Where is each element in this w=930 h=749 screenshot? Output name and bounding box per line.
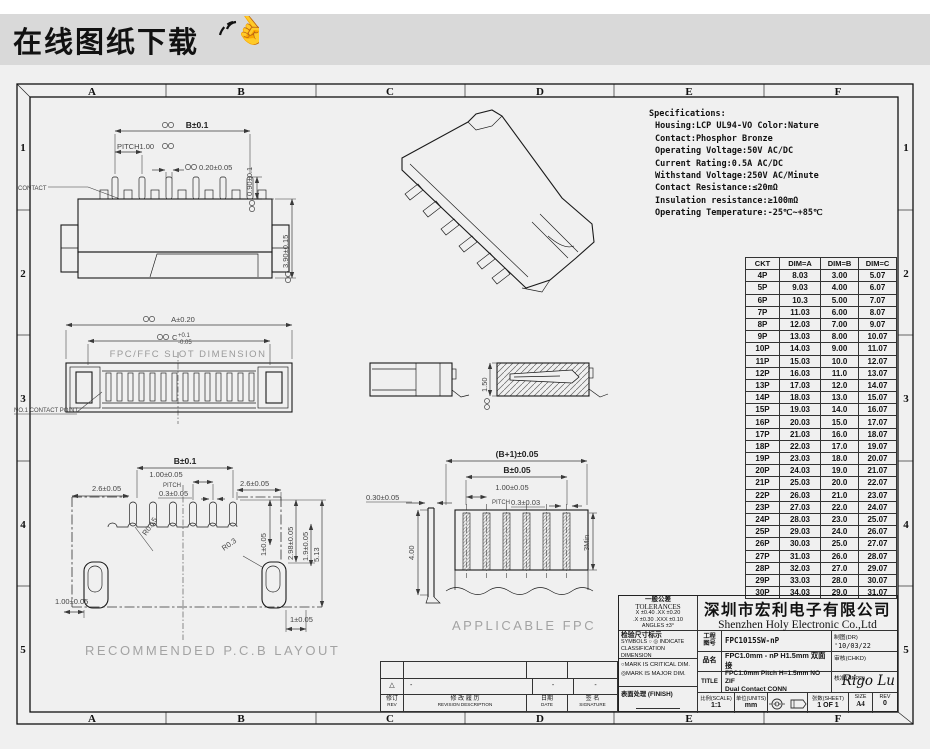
slot-teeth — [106, 373, 254, 401]
pcb-dim-pitch-val: 1.00±0.05 — [149, 470, 182, 479]
spec-lines: Housing:LCP UL94-VO Color:NatureContact:… — [649, 120, 899, 219]
fpc-dim-w: 0.3±0.03 — [511, 498, 540, 507]
table-row: 22P26.0321.023.07 — [746, 489, 897, 501]
size-cell: SIZE A4 — [849, 693, 873, 713]
column-header: DIM=C — [859, 258, 897, 270]
contact-label: CONTACT — [18, 186, 47, 192]
major-dim-note: ◎MARK IS MAJOR DIM. — [621, 670, 695, 679]
revision-mark-desc: - — [404, 679, 533, 695]
sheet-cell: 张数(SHEET)1 OF 1 — [808, 693, 849, 713]
spec-line: Housing:LCP UL94-VO Color:Nature — [649, 120, 899, 132]
table-row: 7P11.036.008.07 — [746, 306, 897, 318]
spec-line: Insulation resistance:≥100mΩ — [649, 195, 899, 207]
title-label: TITLE — [698, 672, 722, 692]
revision-sign-header: 签 名SIGNATURE — [568, 695, 617, 711]
table-row: 10P14.039.0011.07 — [746, 343, 897, 355]
projection-symbol-cell — [768, 693, 808, 713]
zone-number: 2 — [20, 268, 26, 280]
applicable-fpc-view: 0.30±0.05 4.00 — [366, 449, 597, 633]
table-row: 26P30.0325.027.07 — [746, 538, 897, 550]
section-dim-height: 1.50 — [480, 377, 489, 392]
zone-number: 4 — [903, 519, 909, 531]
column-header: CKT — [746, 258, 780, 270]
section-view: 1.50 — [480, 363, 608, 410]
spec-line: Contact:Phosphor Bronze — [649, 133, 899, 145]
slot-view: A±0.20 C +0.1 -0.05 FPC/FFC SLOT DIMENSI… — [14, 315, 292, 424]
checked-label: 审核(CHKD) — [834, 653, 895, 662]
pcb-layout-view: B±0.1 1.00±0.05 PITCH 0.3±0.05 2.6±0.05 … — [55, 456, 340, 658]
table-row: 28P32.0327.029.07 — [746, 562, 897, 574]
zone-letter: E — [685, 713, 692, 725]
revision-mark-rev: △ — [381, 679, 404, 695]
table-row: 29P33.0328.030.07 — [746, 574, 897, 586]
pcb-dim-left: 2.6±0.05 — [92, 484, 121, 493]
third-angle-projection-icon — [769, 696, 807, 712]
checked-cell: 审核(CHKD) — [832, 652, 897, 672]
front-dim-pin-h: 0.90±0.1 — [245, 167, 254, 196]
finish-label: 表面处理 (FINISH) — [621, 691, 673, 698]
title-line1: FPC1.0mm Pitch H=1.5mm NO ZIF — [725, 670, 831, 686]
table-row: 17P21.0316.018.07 — [746, 428, 897, 440]
rev-cell: REV0 — [873, 693, 897, 713]
table-row: 15P19.0314.016.07 — [746, 404, 897, 416]
pcb-dim-pad-w: 0.3±0.05 — [159, 489, 188, 498]
spec-line: Withstand Voltage:250V AC/Minute — [649, 170, 899, 182]
pcb-dim-v3: 1.9±0.05 — [301, 532, 310, 561]
tolerance-line: ANGLES ±3° — [621, 623, 695, 629]
fpc-dim-min: 3Min — [582, 535, 591, 551]
zone-letter: B — [237, 713, 245, 725]
zone-letter: E — [685, 86, 692, 98]
approved-signature: Rigo Lu — [842, 673, 895, 689]
revision-table: △ - - - 修订REV 修 改 履 历REVISION DESCRIPTIO… — [380, 661, 618, 712]
table-row: 20P24.0319.021.07 — [746, 465, 897, 477]
company-name-cn: 深圳市宏利电子有限公司 — [698, 598, 897, 620]
zone-number: 5 — [903, 644, 909, 656]
table-row: 13P17.0312.014.07 — [746, 379, 897, 391]
front-dim-pitch: PITCH1.00 — [117, 142, 154, 151]
zone-number: 4 — [20, 519, 26, 531]
revision-desc-header: 修 改 履 历REVISION DESCRIPTION — [404, 695, 527, 711]
column-header: DIM=A — [780, 258, 821, 270]
slot-dim-c-lower: -0.05 — [178, 340, 192, 346]
zone-number: 1 — [903, 142, 909, 154]
units-cell: 单位(UNITS)mm — [735, 693, 768, 713]
zone-number: 3 — [903, 393, 909, 405]
table-row: 24P28.0323.025.07 — [746, 513, 897, 525]
specifications-block: Specifications: Housing:LCP UL94-VO Colo… — [649, 108, 899, 220]
slot-dim-a: A±0.20 — [171, 315, 195, 324]
contact-point-label: NO.1 CONTACT POINT — [14, 408, 78, 414]
table-row: 18P22.0317.019.07 — [746, 440, 897, 452]
tolerance-line: .X ±0.30 .XXX ±0.10 — [621, 617, 695, 623]
tolerances-cell: 一般公差 TOLERANCES X ±0.40 .XX ±0.20 .X ±0.… — [619, 596, 698, 630]
spec-line: Contact Resistance:≤20mΩ — [649, 182, 899, 194]
revision-date-header: 日期DATE — [527, 695, 568, 711]
drawing-no-value: FPC1015SW-nP — [722, 631, 832, 651]
revision-mark-date: - — [533, 679, 574, 695]
finish-value-blank — [636, 700, 680, 709]
zone-letter: C — [386, 86, 394, 98]
table-row: 9P13.038.0010.07 — [746, 331, 897, 343]
scale-cell: 比例(SCALE)1:1 — [698, 693, 735, 713]
spec-line: Operating Voltage:50V AC/DC — [649, 145, 899, 157]
tolerances-title-en: TOLERANCES — [619, 604, 697, 611]
table-row: 23P27.0322.024.07 — [746, 501, 897, 513]
tolerance-line: X ±0.40 .XX ±0.20 — [621, 610, 695, 616]
front-dim-slot: 0.20±0.05 — [199, 163, 232, 172]
iso-pins — [405, 184, 510, 284]
pcb-dim-bl: 1.00±0.05 — [55, 597, 88, 606]
table-row: 6P10.35.007.07 — [746, 294, 897, 306]
fpc-centerlines — [467, 504, 567, 578]
table-row: 5P9.034.006.07 — [746, 282, 897, 294]
zone-letter: F — [835, 713, 842, 725]
marks-cell: ○MARK IS CRITICAL DIM. ◎MARK IS MAJOR DI… — [619, 659, 697, 687]
zone-letter: A — [88, 86, 96, 98]
ckt-table-body: 4P8.033.005.075P9.034.006.076P10.35.007.… — [746, 270, 897, 599]
table-row: 27P31.0326.028.07 — [746, 550, 897, 562]
table-row: 4P8.033.005.07 — [746, 270, 897, 282]
symbols-line2: CLASSIFICATION DIMENSION — [621, 646, 695, 660]
company-name-en: Shenzhen Holy Electronic Co.,Ltd — [698, 619, 897, 631]
front-view: B±0.1 PITCH1.00 0.20±0.05 0.90±0.1 3.90±… — [18, 120, 296, 283]
table-row: 8P12.037.009.07 — [746, 318, 897, 330]
table-row: 19P23.0318.020.07 — [746, 453, 897, 465]
spec-line: Operating Temperature:-25℃~+85℃ — [649, 207, 899, 219]
finish-cell: 表面处理 (FINISH) — [619, 687, 697, 713]
spec-line: Current Rating:0.5A AC/DC — [649, 158, 899, 170]
pcb-r2: R0.3 — [220, 536, 238, 552]
pcb-dim-v1: 1±0.05 — [259, 533, 268, 556]
fpc-traces — [463, 513, 570, 570]
approved-cell: 核准(APPD) Rigo Lu — [832, 672, 897, 692]
zone-number: 5 — [20, 644, 26, 656]
zone-letter: B — [237, 86, 245, 98]
company-cell: 深圳市宏利电子有限公司 Shenzhen Holy Electronic Co.… — [698, 596, 897, 630]
symbols-line1: SYMBOLS ○ ◎ INDICATE — [621, 639, 695, 646]
ckt-dimension-table: CKTDIM=ADIM=BDIM=C 4P8.033.005.075P9.034… — [745, 257, 897, 599]
pcb-dim-v2: 2.98±0.05 — [286, 527, 295, 560]
pcb-caption: RECOMMENDED P.C.B LAYOUT — [85, 643, 340, 658]
fpc-pitch-label: PITCH — [492, 500, 510, 506]
side-view — [370, 363, 469, 397]
zone-number: 3 — [20, 393, 26, 405]
zone-letter: C — [386, 713, 394, 725]
page: 在线图纸下载 ☝ — [0, 0, 930, 749]
drawn-value: '10/03/22 — [834, 642, 895, 650]
revision-mark-sign: - — [574, 679, 617, 695]
zone-letter: D — [536, 86, 544, 98]
zone-number: 2 — [903, 268, 909, 280]
specifications-title: Specifications: — [649, 108, 899, 120]
revision-rev-header: 修订REV — [381, 695, 404, 711]
drawn-label: 制图(DR) — [834, 632, 895, 641]
table-row: 25P29.0324.026.07 — [746, 526, 897, 538]
drawn-cell: 制图(DR) '10/03/22 — [832, 631, 897, 651]
front-dim-body-h: 3.90±0.15 — [281, 235, 290, 268]
symbols-cell: 检验尺寸标示 SYMBOLS ○ ◎ INDICATE CLASSIFICATI… — [619, 631, 697, 659]
zone-letter: F — [835, 86, 842, 98]
table-row: 14P18.0313.015.07 — [746, 392, 897, 404]
symbols-title: 检验尺寸标示 — [621, 632, 695, 639]
front-dim-b: B±0.1 — [186, 120, 209, 130]
title-block: 一般公差 TOLERANCES X ±0.40 .XX ±0.20 .X ±0.… — [618, 595, 898, 712]
part-name-value: FPC1.0mm - nP H1.5mm 双面接 — [722, 652, 832, 672]
table-row: 11P15.0310.012.07 — [746, 355, 897, 367]
part-name-label: 品名 — [698, 652, 722, 672]
fpc-dim-len: 4.00 — [407, 545, 416, 560]
pcb-dim-b: B±0.1 — [174, 456, 197, 466]
fpc-caption: APPLICABLE FPC — [452, 618, 596, 633]
pcb-r1: R0.15 — [140, 516, 159, 538]
zone-letter: A — [88, 713, 96, 725]
zone-number: 1 — [20, 142, 26, 154]
slot-dim-c-upper: +0.1 — [178, 333, 191, 339]
fpc-dim-pitch: 1.00±0.05 — [495, 483, 528, 492]
ckt-table-header: CKTDIM=ADIM=BDIM=C — [746, 258, 897, 270]
fpc-dim-t: 0.30±0.05 — [366, 493, 399, 502]
fpc-dim-b: B±0.05 — [503, 465, 531, 475]
pcb-dim-right: 2.6±0.05 — [240, 479, 269, 488]
column-header: DIM=B — [821, 258, 859, 270]
pcb-dim-v4: 5.13 — [312, 547, 321, 562]
table-row: 12P16.0311.013.07 — [746, 367, 897, 379]
pcb-dim-br: 1±0.05 — [290, 615, 313, 624]
slot-title: FPC/FFC SLOT DIMENSION — [110, 349, 267, 360]
zone-letter: D — [536, 713, 544, 725]
isometric-view — [402, 110, 594, 292]
critical-dim-note: ○MARK IS CRITICAL DIM. — [621, 661, 695, 670]
table-row: 21P25.0320.022.07 — [746, 477, 897, 489]
drawing-no-label: 工程图号 — [698, 631, 722, 651]
fpc-dim-total: (B+1)±0.05 — [496, 449, 539, 459]
table-row: 16P20.0315.017.07 — [746, 416, 897, 428]
